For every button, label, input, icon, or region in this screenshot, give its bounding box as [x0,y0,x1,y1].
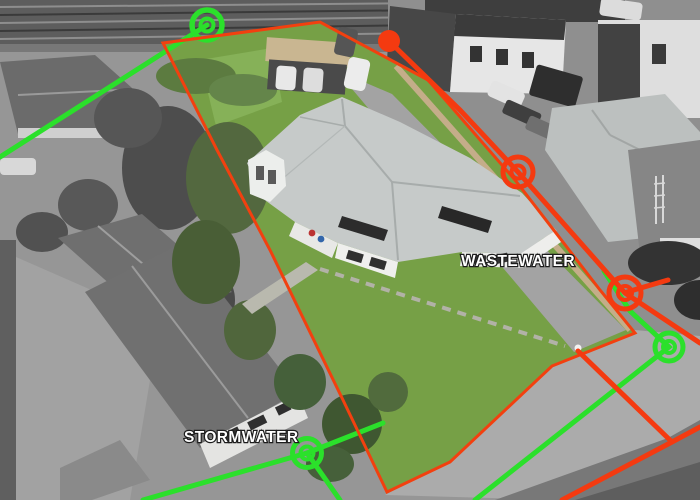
aerial-photo-canvas: WASTEWATER STORMWATER [0,0,700,500]
wastewater-origin-dot [378,30,400,52]
aerial-photo: WASTEWATER STORMWATER [0,0,700,500]
wastewater-label: WASTEWATER [461,253,575,270]
stormwater-label: STORMWATER [184,429,299,446]
